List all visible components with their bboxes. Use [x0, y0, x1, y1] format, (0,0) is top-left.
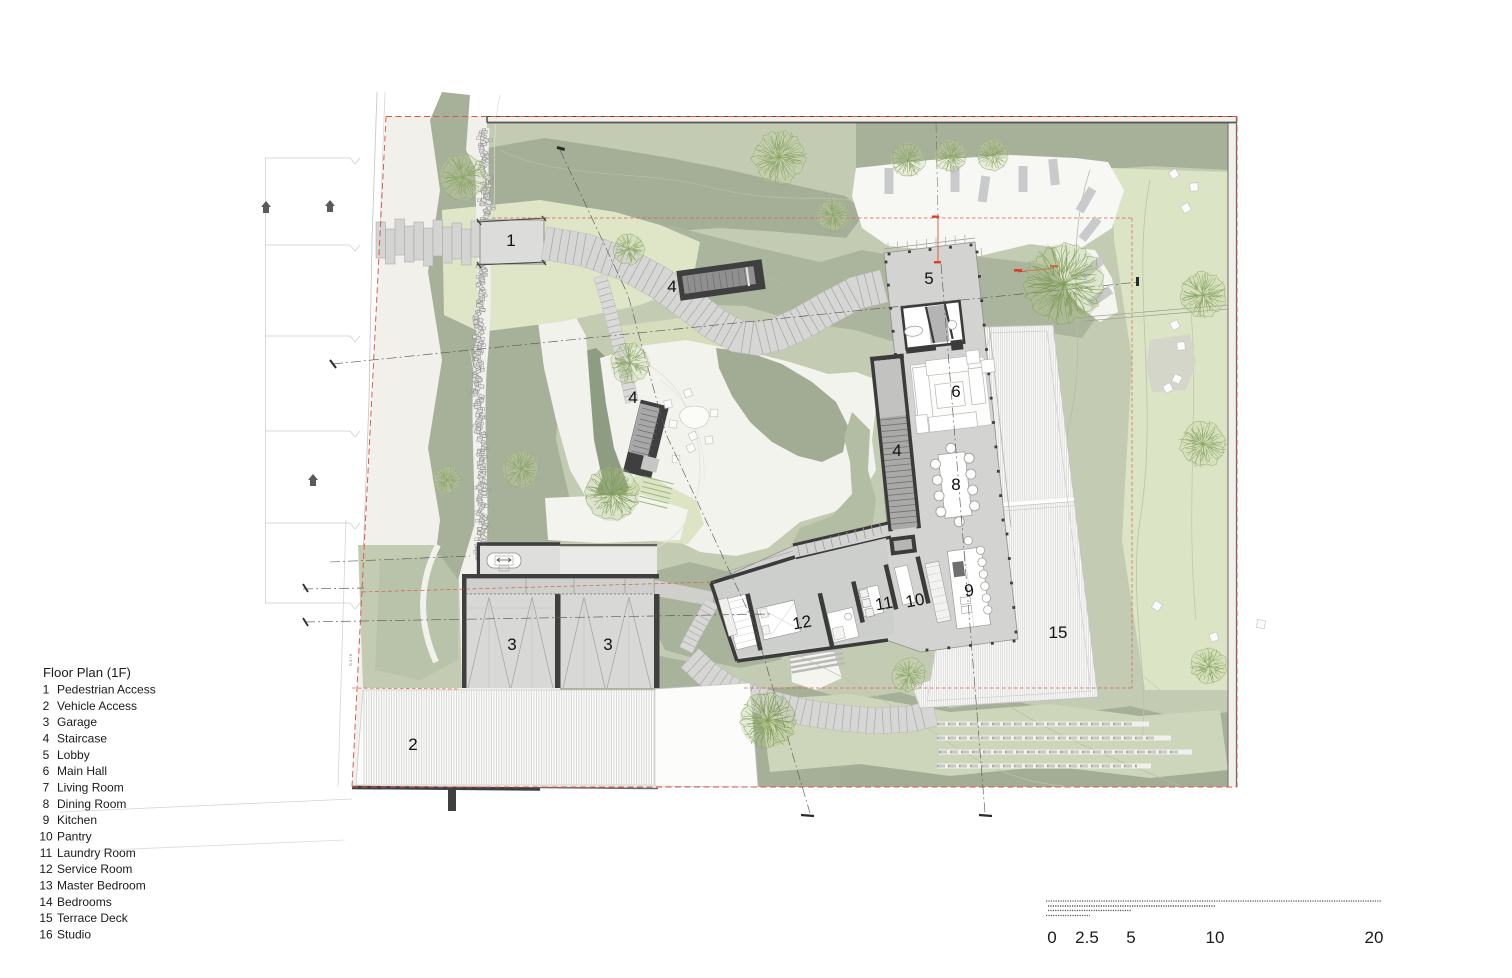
- svg-text:12: 12: [39, 862, 53, 876]
- svg-text:Kitchen: Kitchen: [57, 813, 97, 827]
- svg-text:Vehicle Access: Vehicle Access: [57, 699, 137, 713]
- svg-text:Service Room: Service Room: [57, 862, 132, 876]
- svg-text:Lobby: Lobby: [57, 748, 90, 762]
- svg-text:10: 10: [904, 590, 926, 612]
- svg-text:Studio: Studio: [57, 927, 91, 941]
- svg-text:Pedestrian Access: Pedestrian Access: [57, 683, 156, 697]
- svg-text:9: 9: [43, 813, 50, 827]
- svg-text:4: 4: [667, 277, 676, 296]
- svg-text:Dining Room: Dining Room: [57, 797, 126, 811]
- svg-text:2: 2: [43, 699, 50, 713]
- svg-text:5: 5: [924, 269, 933, 288]
- svg-text:Pantry: Pantry: [57, 829, 92, 843]
- svg-text:5: 5: [43, 748, 50, 762]
- svg-text:3: 3: [507, 635, 516, 654]
- svg-text:1: 1: [506, 231, 515, 250]
- svg-text:15: 15: [1049, 623, 1068, 642]
- svg-text:14: 14: [39, 895, 53, 909]
- svg-text:G a t e: G a t e: [348, 653, 353, 666]
- svg-text:10: 10: [1206, 928, 1225, 947]
- svg-text:8: 8: [43, 797, 50, 811]
- svg-text:Living Room: Living Room: [57, 780, 124, 794]
- svg-text:3: 3: [43, 715, 50, 729]
- svg-text:Terrace Deck: Terrace Deck: [57, 911, 129, 925]
- svg-text:Laundry Room: Laundry Room: [57, 846, 136, 860]
- svg-text:8: 8: [951, 475, 960, 494]
- svg-text:Garage: Garage: [57, 715, 97, 729]
- svg-text:3: 3: [603, 635, 612, 654]
- svg-text:2.5: 2.5: [1075, 928, 1099, 947]
- svg-text:6: 6: [43, 764, 50, 778]
- svg-text:12: 12: [791, 612, 813, 634]
- svg-text:Bedrooms: Bedrooms: [57, 895, 112, 909]
- svg-text:4: 4: [43, 731, 50, 745]
- svg-text:20: 20: [1365, 928, 1384, 947]
- svg-text:10: 10: [39, 829, 53, 843]
- svg-text:Floor Plan (1F): Floor Plan (1F): [43, 665, 131, 680]
- svg-text:Main Hall: Main Hall: [57, 764, 107, 778]
- svg-text:15: 15: [39, 911, 53, 925]
- svg-text:7: 7: [43, 780, 50, 794]
- svg-text:Staircase: Staircase: [57, 731, 107, 745]
- svg-text:13: 13: [39, 878, 53, 892]
- svg-text:4: 4: [628, 388, 637, 407]
- svg-text:0: 0: [1047, 928, 1056, 947]
- svg-text:4: 4: [892, 441, 901, 460]
- svg-text:11: 11: [874, 593, 895, 615]
- svg-text:2: 2: [408, 735, 417, 754]
- svg-text:6: 6: [951, 382, 960, 401]
- svg-text:5: 5: [1126, 928, 1135, 947]
- svg-text:11: 11: [40, 846, 53, 860]
- svg-text:Master Bedroom: Master Bedroom: [57, 878, 146, 892]
- svg-text:16: 16: [39, 927, 53, 941]
- svg-text:1: 1: [43, 683, 50, 697]
